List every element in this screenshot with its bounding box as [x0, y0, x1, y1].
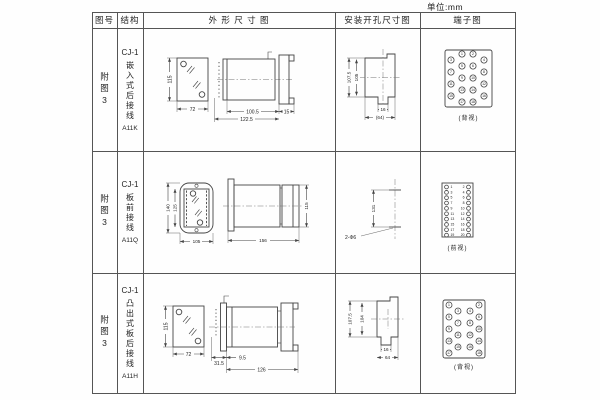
terminal-pin [445, 185, 449, 189]
terminal-number: 18 [471, 100, 475, 104]
terminal-number: 8 [469, 321, 471, 325]
terminal-number: 6 [463, 196, 465, 200]
terminal-number: 12 [468, 333, 472, 337]
dim-label: 16 [383, 347, 389, 352]
dim-label: 16 [380, 107, 386, 112]
dim-label: 115 [167, 75, 173, 83]
terminal-pin [467, 190, 471, 194]
terminal-number: 17 [447, 351, 451, 355]
terminal-number: 9 [451, 206, 453, 210]
terminal-number: 19 [451, 233, 455, 237]
terminal-number: 10 [471, 76, 475, 80]
terminal-pin [445, 201, 449, 205]
hook-mark [268, 52, 272, 59]
terminal-number: 15 [449, 94, 453, 98]
structure-code: A11K [122, 125, 137, 132]
terminal-number: 3 [451, 190, 453, 194]
terminal-number: 11 [449, 82, 453, 86]
grid-line [92, 393, 516, 394]
terminal-number: 12 [461, 212, 465, 216]
figure-label: 附图3 [99, 315, 111, 351]
dim-label: 140 [166, 204, 171, 212]
terminal-number: 7 [451, 201, 453, 205]
dim-label: 122.5 [240, 117, 253, 123]
terminal-number: 9 [448, 327, 450, 331]
header-outline: 外 形 尺 寸 图 [143, 12, 335, 28]
dim-label: 125 [173, 204, 178, 212]
front-view: 140 125 105 [165, 183, 214, 245]
terminal-pin [445, 190, 449, 194]
structure-desc: 凸出式板后接线 [125, 299, 136, 369]
terminal-number: 4 [469, 309, 471, 313]
view-label: (前视) [448, 244, 468, 252]
figure-cell-row3: 附图3 [92, 273, 117, 393]
terminal-number: 8 [483, 70, 485, 74]
dim-label: 9.5 [239, 355, 246, 361]
structure-cell-row3: CJ-1 凸出式板后接线 A11H [117, 273, 143, 393]
view-label: (背视) [454, 363, 474, 371]
dim-label: 131 [371, 204, 376, 212]
terminal-number: 14 [471, 88, 475, 92]
outline-diagram-row2: 140 125 105 156 115 [143, 151, 335, 273]
side-view: 31.5 9.5 126 [209, 296, 298, 373]
structure-code: A11H [122, 373, 138, 380]
terminal-number: 12 [482, 82, 486, 86]
side-view: 156 115 [223, 179, 310, 244]
front-view: 115 72 [166, 58, 209, 113]
terminal-number: 13 [451, 217, 455, 221]
terminal-number: 3 [457, 309, 459, 313]
terminal-number: 1 [451, 185, 453, 189]
terminal-pin [467, 217, 471, 221]
dim-label: 107.5 [348, 313, 353, 325]
terminal-number: 18 [477, 351, 481, 355]
dim-label: (64) [376, 115, 385, 120]
figure-cell-row2: 附图3 [92, 151, 117, 273]
terminal-number: 1 [448, 303, 450, 307]
terminal-pin [445, 207, 449, 211]
terminal-number: 9 [461, 76, 463, 80]
dim-label: 64 [385, 355, 391, 360]
dim-label: 156 [259, 238, 267, 243]
page: 单位:mm 图号 结构 外 形 尺 寸 图 安装开孔尺寸图 端子图 附图3 CJ… [0, 0, 600, 400]
terminal-number: 5 [461, 64, 463, 68]
figure-label: 附图3 [99, 72, 111, 108]
terminal-number: 20 [461, 233, 465, 237]
terminal-pin [445, 228, 449, 232]
cutout-shape [365, 54, 395, 104]
terminal-number: 7 [457, 321, 459, 325]
dim-label: 107.5 [347, 71, 352, 83]
terminal-number: 4 [463, 190, 465, 194]
dim-label: 126 [257, 367, 266, 373]
terminal-number: 13 [447, 339, 451, 343]
terminal-pin [467, 201, 471, 205]
terminal-number: 14 [461, 217, 465, 221]
dim-label: 115 [304, 202, 309, 210]
hook-mark [224, 296, 229, 303]
header-mounting: 安装开孔尺寸图 [335, 12, 420, 28]
terminal-number: 16 [468, 345, 472, 349]
structure-model: CJ-1 [122, 286, 139, 295]
terminal-pin [445, 223, 449, 227]
terminal-number: 1 [461, 52, 463, 56]
terminal-pin [445, 233, 449, 237]
terminal-pin [467, 233, 471, 237]
dim-label: 72 [190, 107, 196, 113]
dim-label: 15 [284, 109, 290, 115]
structure-cell-row2: CJ-1 板前接线 A11Q [117, 151, 143, 273]
view-label: (背视) [459, 114, 479, 122]
structure-desc: 嵌入式后接线 [125, 61, 136, 121]
terminal-pin [467, 185, 471, 189]
dim-label: 115 [163, 322, 169, 330]
structure-code: A11Q [122, 237, 138, 244]
mounting-diagram-row3: 107.5 104 16 64 [335, 273, 420, 393]
terminal-pin [467, 212, 471, 216]
structure-cell-row1: CJ-1 嵌入式后接线 A11K [117, 28, 143, 151]
figure-cell-row1: 附图3 [92, 28, 117, 151]
terminal-number: 14 [477, 339, 481, 343]
terminal-number: 16 [482, 94, 486, 98]
side-view: 100.5 122.5 15 [215, 52, 295, 123]
terminal-number: 16 [461, 222, 465, 226]
header-terminal: 端子图 [420, 12, 515, 28]
terminal-number: 17 [451, 228, 455, 232]
mounting-diagram-row1: 107.5 105 16 (64) [335, 28, 420, 151]
terminal-number: 11 [456, 333, 460, 337]
terminal-pin [467, 196, 471, 200]
terminal-number: 2 [472, 52, 474, 56]
terminal-pin [445, 217, 449, 221]
terminal-number: 8 [463, 201, 465, 205]
figure-label: 附图3 [99, 194, 111, 230]
dim-label: 72 [186, 352, 192, 358]
front-view: 115 72 [162, 306, 204, 358]
terminal-number: 7 [450, 70, 452, 74]
terminal-number: 2 [478, 303, 480, 307]
outline-diagram-row1: 115 72 100.5 122.5 [143, 28, 335, 151]
terminal-number: 2 [463, 185, 465, 189]
terminal-number: 11 [451, 212, 455, 216]
terminal-pin [445, 212, 449, 216]
terminal-number: 15 [456, 345, 460, 349]
terminal-number: 3 [450, 58, 452, 62]
terminal-number: 10 [477, 327, 481, 331]
terminal-number: 13 [460, 88, 464, 92]
terminal-number: 17 [460, 100, 464, 104]
hole-spec-label: 2-Φ6 [345, 235, 356, 241]
terminal-diagram-row1: (背视) 123456789101112131415161718 [420, 28, 515, 151]
terminal-number: 4 [483, 58, 485, 62]
terminal-number: 15 [451, 222, 455, 226]
terminal-number: 5 [448, 315, 450, 319]
terminal-pin [467, 223, 471, 227]
dim-label: 105 [354, 73, 359, 81]
dim-label: 31.5 [214, 361, 224, 367]
terminal-diagram-row2: (前视) 1234567891011121314151617181920 [420, 151, 515, 273]
structure-model: CJ-1 [122, 180, 139, 189]
mounting-diagram-row2: 131 2-Φ6 [335, 151, 420, 273]
terminal-diagram-row3: (背视) 123456789101112131415161718 [420, 273, 515, 393]
header-structure: 结构 [117, 12, 143, 28]
grid-line [515, 12, 516, 393]
dim-label: 105 [193, 239, 201, 244]
terminal-number: 18 [461, 228, 465, 232]
dim-label: 100.5 [246, 109, 259, 115]
terminal-number: 5 [451, 196, 453, 200]
header-figure: 图号 [92, 12, 117, 28]
outline-diagram-row3: 115 72 31.5 9.5 [143, 273, 335, 393]
terminal-number: 10 [461, 206, 465, 210]
structure-desc: 板前接线 [125, 193, 136, 233]
structure-model: CJ-1 [122, 48, 139, 57]
terminal-pin [467, 207, 471, 211]
terminal-number: 6 [472, 64, 474, 68]
terminal-pin [467, 228, 471, 232]
cutout-shape [377, 297, 398, 345]
terminal-pin [445, 196, 449, 200]
terminal-number: 6 [478, 315, 480, 319]
dim-label: 104 [360, 315, 365, 323]
